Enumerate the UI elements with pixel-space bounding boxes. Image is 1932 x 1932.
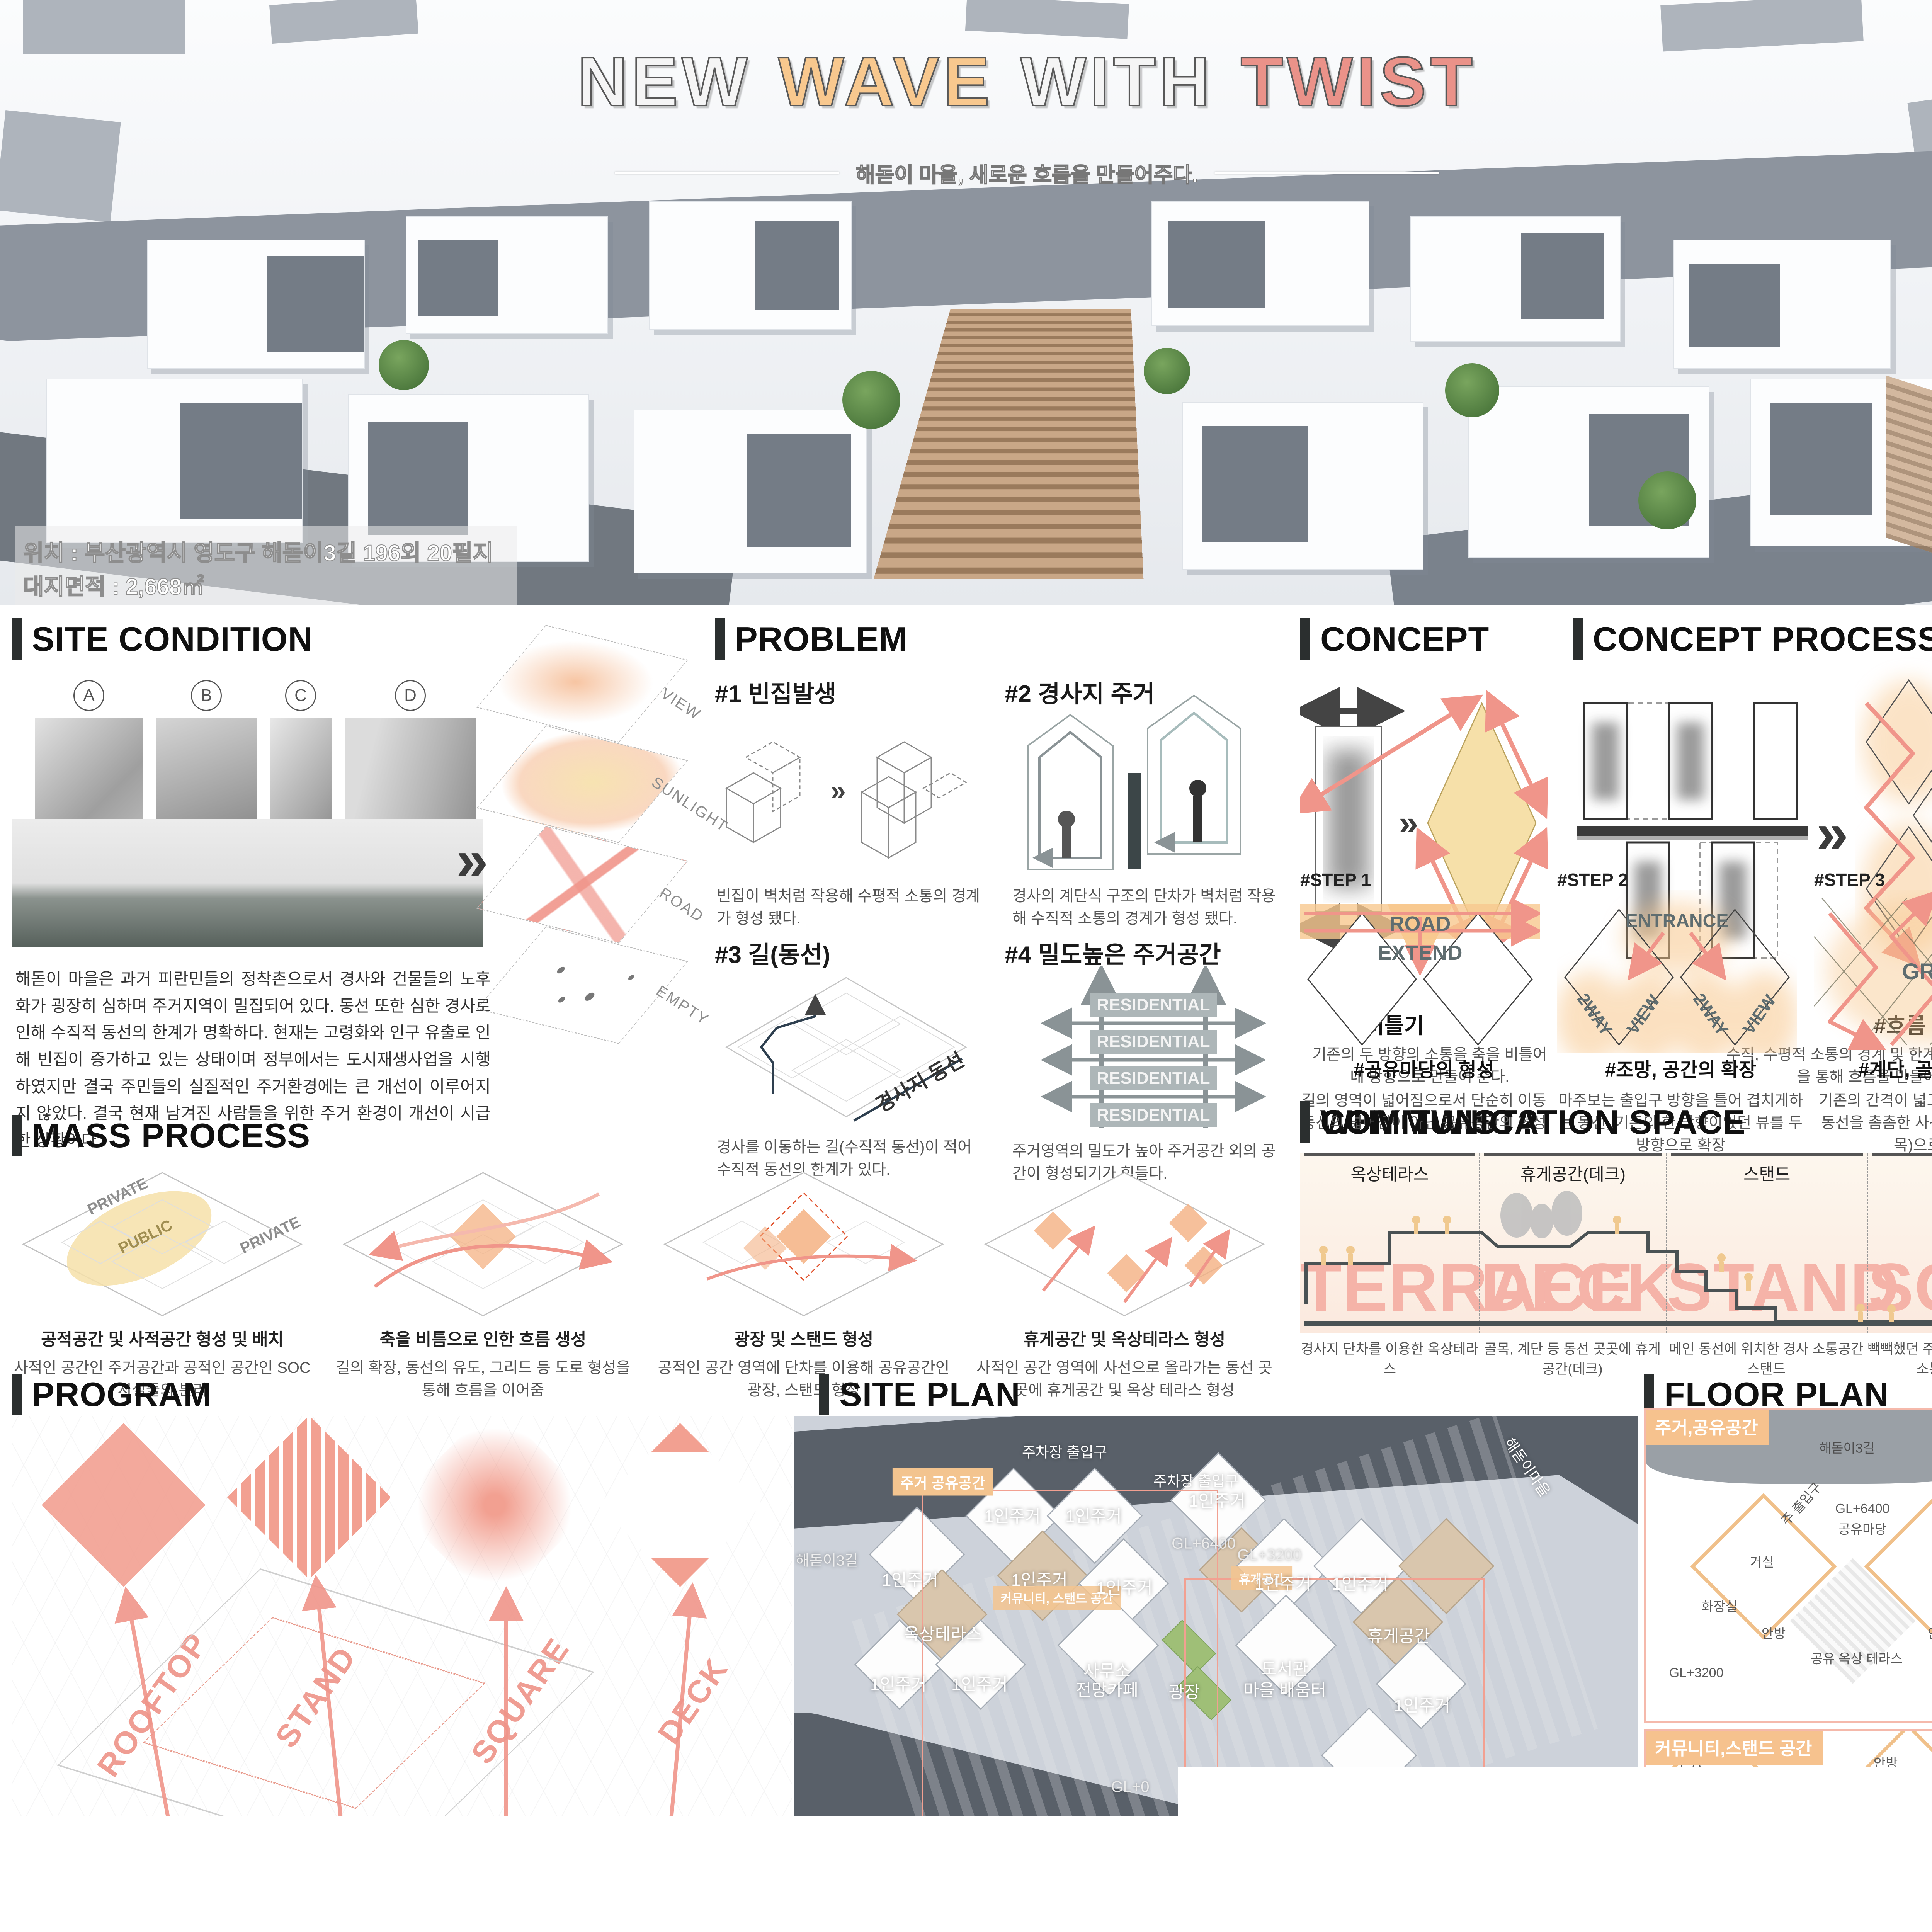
mass-step-2: 축을 비틈으로 인한 흐름 생성 길의 확장, 동선의 유도, 그리드 등 도로… (332, 1163, 634, 1401)
problem-1-diagram: » (715, 711, 978, 881)
mass-process-row: PRIVATE PRIVATE PUBLIC 공적공간 및 사적공간 형성 및 … (12, 1163, 1275, 1401)
problem-2-caption: 경사의 계단식 구조의 단차가 벽처럼 작용해 수직적 소통의 경계가 형성 됐… (1012, 885, 1283, 930)
problem-4-diagram: RESIDENTIAL RESIDENTIAL RESIDENTIAL RESI… (1036, 966, 1275, 1136)
site-condition-header: SITE CONDITION (12, 618, 313, 660)
mass-step-1-diagram: PRIVATE PRIVATE PUBLIC (12, 1163, 313, 1325)
site-area: 대지면적 : 2,668㎡ (23, 570, 493, 604)
context-building (269, 0, 418, 44)
mass-step-2-diagram (332, 1163, 634, 1325)
why-step-1: #STEP 1 ROAD EXTEND #공유마당의 형성 길의 영역이 넓어짐… (1300, 869, 1548, 1134)
housing-mass (147, 240, 365, 369)
view-layer (476, 625, 688, 742)
header-bar (12, 618, 22, 660)
why-step-3-diagram: GRID (1814, 890, 1932, 1053)
subtitle-text: 해돋이 마을, 새로운 흐름을 만들어주다. (856, 158, 1198, 188)
housing-mass (406, 216, 608, 334)
photo-letter: A (73, 680, 104, 711)
tree (1638, 471, 1696, 529)
program-diagram: ROOFTOP STAND SQUARE DECK CAFE OFFICE SE… (12, 1416, 792, 1932)
title-word: WAVE (778, 42, 993, 122)
board-subtitle: 해돋이 마을, 새로운 흐름을 만들어주다. (615, 158, 1439, 188)
svg-text:GRID: GRID (1902, 959, 1932, 984)
chevron-icon: » (456, 831, 488, 889)
mass-step-3: 광장 및 스탠드 형성 공적인 공간 영역에 단차를 이용해 공유공간인 광장,… (653, 1163, 954, 1401)
detail-frame-b (1184, 1578, 1485, 1875)
terrain-profile (1300, 1188, 1932, 1327)
svg-text:»: » (1399, 804, 1418, 842)
mass-step-4: 휴게공간 및 옥상테라스 형성 사적인 공간 영역에 사선으로 올라가는 동선 … (974, 1163, 1275, 1401)
board-title: NEW WAVE WITH TWIST (577, 42, 1476, 122)
context-building (1660, 0, 1864, 52)
housing-mass (634, 410, 867, 573)
title-word: TWIST (1241, 42, 1476, 122)
mass-step-4-diagram (974, 1163, 1275, 1325)
program-header: PROGRAM (12, 1374, 212, 1415)
presentation-board: NEW WAVE WITH TWIST 해돋이 마을, 새로운 흐름을 만들어주… (0, 0, 1932, 1932)
problem-1-tag: #1 빈집발생 (715, 674, 836, 709)
mass-process-header: MASS PROCESS (12, 1115, 310, 1156)
floor-plan-panel-1: 주거,공유공간 해돋이3길 GL+6400 공유마당 거실 거실 화장실 화장실… (1644, 1408, 1932, 1723)
site-info: 위치 : 부산광역시 영도구 해돋이3길 196외 20필지 대지면적 : 2,… (15, 526, 517, 605)
village-panorama-photo (12, 819, 483, 947)
svg-text:RESIDENTIAL: RESIDENTIAL (1097, 1032, 1210, 1051)
svg-text:ENTRANCE: ENTRANCE (1626, 911, 1729, 931)
housing-mass (1410, 216, 1621, 342)
svg-text:ROAD: ROAD (1389, 912, 1451, 935)
mass-step-1: PRIVATE PRIVATE PUBLIC 공적공간 및 사적공간 형성 및 … (12, 1163, 313, 1401)
title-word: NEW (577, 42, 751, 122)
svg-text:»: » (831, 776, 846, 806)
central-stairs (874, 309, 1143, 579)
problem-2-diagram (1012, 692, 1283, 885)
communication-space-panel: 옥상테라스 TERRACE 휴게공간(데크) DECK 스탠드 STAND 광장… (1300, 1153, 1932, 1333)
svg-text:EXTEND: EXTEND (1378, 941, 1462, 964)
hero-rendering: NEW WAVE WITH TWIST 해돋이 마을, 새로운 흐름을 만들어주… (0, 0, 1932, 605)
problem-3-tag: #3 길(동선) (715, 935, 830, 970)
context-building (965, 0, 1129, 39)
problem-1-caption: 빈집이 벽처럼 작용해 수평적 소통의 경계가 형성 됐다. (717, 885, 983, 930)
svg-text:RESIDENTIAL: RESIDENTIAL (1097, 1069, 1210, 1088)
housing-mass (46, 379, 303, 543)
why-step-1-diagram: ROAD EXTEND (1300, 890, 1540, 1053)
floor-plan-panel-2: 커뮤니티,스탠드 공간 안방 안방 카페 옥상테라스 GL+3200 광장 도서… (1644, 1729, 1932, 1932)
road-layer (476, 826, 688, 943)
why-step-3: #STEP 3 GRID #계단, 골목의 확장 기존의 간격이 넓고 가파르던… (1814, 869, 1932, 1156)
tree (1445, 363, 1499, 417)
housing-mass (1673, 240, 1891, 369)
context-building (0, 110, 121, 222)
subtitle-line (1215, 172, 1439, 174)
mass-step-3-diagram (653, 1163, 954, 1325)
unit-room (1844, 1729, 1932, 1854)
svg-text:RESIDENTIAL: RESIDENTIAL (1097, 995, 1210, 1014)
why-step-2-diagram: ENTRANCE 2WAY VIEW 2WAY VIEW (1557, 890, 1797, 1053)
problem-3-diagram: 경사지 동선 (715, 970, 978, 1136)
context-building (23, 0, 185, 54)
svg-text:RESIDENTIAL: RESIDENTIAL (1097, 1105, 1210, 1124)
subtitle-line (615, 172, 839, 174)
site-plan-map: 1인주거 1인주거 1인주거 1인주거 커뮤니티, 스탠드 공간 1인주거 1인… (794, 1416, 1638, 1932)
concept-header: CONCEPT (1300, 618, 1489, 660)
site-plan-header: SITE PLAN (819, 1374, 1020, 1415)
photo-letter: B (191, 680, 222, 711)
chevron-icon: » (1816, 804, 1848, 862)
problem-header: PROBLEM (715, 618, 908, 660)
title-word: WITH (1020, 42, 1214, 122)
problem-4-tag: #4 밀도높은 주거공간 (1005, 935, 1221, 970)
tree (1144, 348, 1190, 394)
photo-letter: C (285, 680, 316, 711)
tree (842, 371, 900, 429)
communication-space-header: COMMUNICATION SPACE (1300, 1101, 1746, 1143)
housing-mass (1151, 201, 1369, 326)
communication-captions: 경사지 단차를 이용한 옥상테라스 골목, 계단 등 동선 곳곳에 휴게공간(데… (1300, 1339, 1932, 1379)
housing-mass (649, 201, 852, 330)
concept-process-header: CONCEPT PROCESS (1573, 618, 1932, 660)
housing-mass (1182, 402, 1423, 570)
empty-layer (476, 926, 688, 1044)
photo-letter: D (395, 680, 426, 711)
tree (379, 340, 429, 390)
site-location: 위치 : 부산광역시 영도구 해돋이3길 196외 20필지 (23, 536, 493, 570)
